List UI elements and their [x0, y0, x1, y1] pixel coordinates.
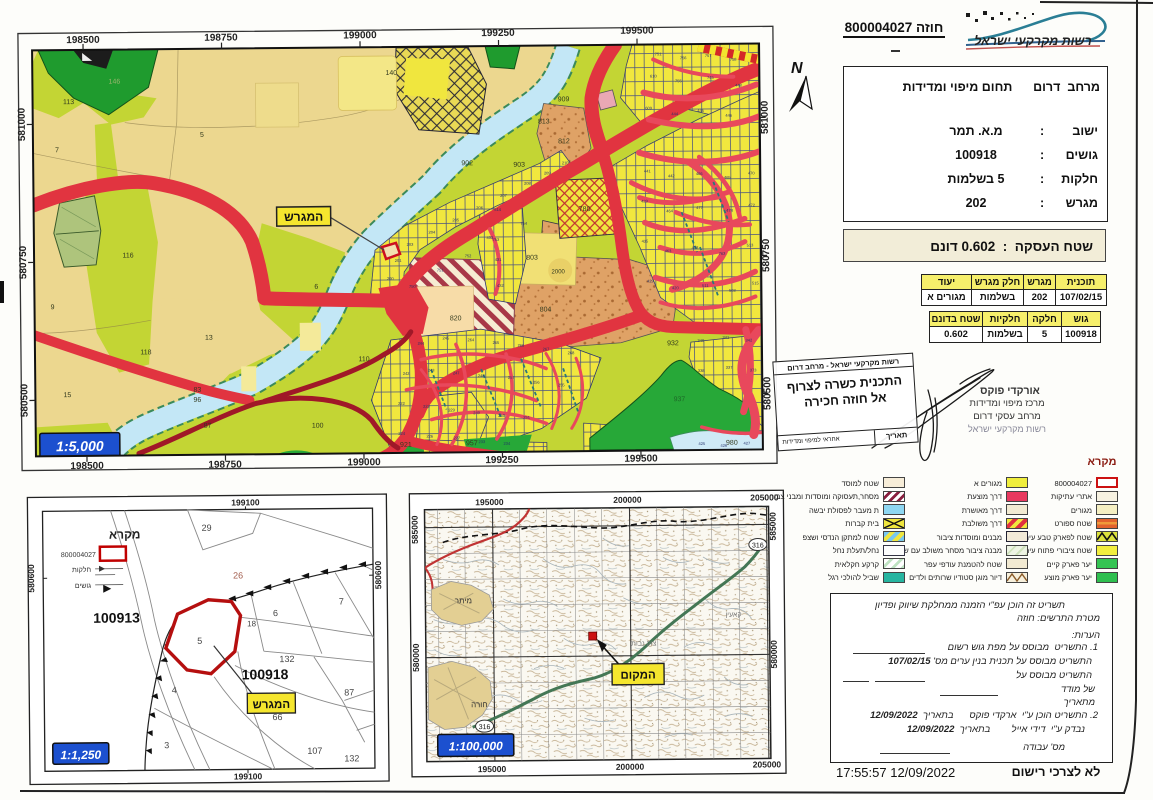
svg-text:113: 113 [63, 99, 74, 106]
svg-text:חלקות: חלקות [72, 566, 91, 574]
svg-text:580600: 580600 [26, 564, 36, 593]
svg-text:209: 209 [544, 170, 551, 175]
svg-text:316: 316 [752, 542, 764, 549]
svg-text:222: 222 [398, 401, 405, 406]
svg-text:474: 474 [726, 208, 733, 213]
svg-text:751: 751 [437, 267, 444, 272]
svg-text:466: 466 [696, 171, 703, 176]
svg-text:198750: 198750 [208, 459, 242, 470]
svg-text:4: 4 [172, 685, 177, 695]
svg-text:580500: 580500 [19, 383, 30, 417]
svg-text:צוק נבות: צוק נבות [631, 640, 657, 647]
svg-text:470: 470 [748, 170, 755, 175]
svg-text:100913: 100913 [93, 609, 140, 625]
svg-text:752: 752 [465, 253, 472, 258]
svg-text:199000: 199000 [343, 30, 377, 41]
svg-text:116: 116 [122, 252, 133, 259]
svg-text:580000: 580000 [411, 643, 421, 672]
svg-text:580000: 580000 [769, 640, 779, 669]
svg-text:226: 226 [426, 434, 433, 439]
svg-text:268: 268 [568, 350, 575, 355]
svg-text:198500: 198500 [66, 35, 100, 46]
svg-text:110: 110 [358, 356, 369, 363]
svg-text:256: 256 [533, 380, 540, 385]
svg-text:267: 267 [543, 346, 550, 351]
svg-text:6: 6 [273, 608, 278, 618]
svg-text:87: 87 [204, 423, 212, 430]
svg-text:465: 465 [724, 175, 731, 180]
svg-text:464: 464 [666, 208, 673, 213]
svg-text:245: 245 [442, 335, 449, 340]
svg-text:1:1,250: 1:1,250 [60, 748, 101, 762]
svg-text:7: 7 [55, 147, 59, 154]
svg-text:83: 83 [193, 387, 201, 394]
svg-text:199250: 199250 [485, 455, 519, 466]
svg-text:478: 478 [692, 245, 699, 250]
svg-text:804: 804 [540, 306, 552, 313]
svg-text:581000: 581000 [17, 107, 28, 141]
svg-text:מקרא: מקרא [109, 527, 141, 541]
svg-text:242: 242 [403, 371, 410, 376]
svg-text:198750: 198750 [204, 32, 238, 43]
svg-text:257: 257 [508, 375, 515, 380]
svg-text:205000: 205000 [753, 759, 782, 769]
svg-text:266: 266 [518, 343, 525, 348]
svg-text:198500: 198500 [70, 461, 104, 472]
svg-text:420: 420 [672, 285, 679, 290]
svg-text:932: 932 [667, 340, 679, 347]
svg-text:210: 210 [562, 160, 569, 165]
svg-text:426: 426 [721, 443, 728, 448]
svg-text:146: 146 [108, 79, 120, 86]
svg-text:140: 140 [385, 70, 397, 77]
svg-text:756: 756 [680, 55, 687, 60]
svg-text:199000: 199000 [347, 457, 381, 468]
svg-text:המגרש: המגרש [253, 699, 291, 711]
svg-text:431: 431 [495, 257, 502, 262]
svg-text:511: 511 [702, 283, 709, 288]
svg-text:373: 373 [750, 367, 757, 372]
svg-text:132: 132 [344, 753, 359, 763]
svg-text:87: 87 [344, 687, 354, 697]
svg-text:758: 758 [730, 57, 737, 62]
svg-text:250: 250 [498, 413, 505, 418]
svg-text:251: 251 [523, 415, 530, 420]
svg-text:580750: 580750 [18, 245, 29, 279]
svg-text:199500: 199500 [620, 25, 654, 36]
svg-text:223: 223 [423, 404, 430, 409]
svg-text:המקום: המקום [620, 669, 655, 681]
svg-text:9: 9 [51, 304, 55, 311]
svg-text:195000: 195000 [475, 497, 504, 507]
svg-text:763: 763 [719, 251, 726, 256]
svg-text:6: 6 [314, 284, 318, 291]
svg-text:337: 337 [726, 365, 733, 370]
svg-text:200000: 200000 [616, 762, 645, 772]
svg-text:813: 813 [538, 118, 550, 125]
svg-text:המגרש: המגרש [284, 210, 323, 224]
svg-text:199250: 199250 [481, 28, 515, 39]
svg-text:גושים: גושים [75, 583, 91, 590]
svg-text:513: 513 [747, 243, 754, 248]
svg-text:472: 472 [748, 202, 755, 207]
svg-text:442: 442 [668, 173, 675, 178]
svg-text:מיתר: מיתר [455, 596, 472, 605]
svg-text:909: 909 [558, 96, 570, 103]
svg-text:514: 514 [494, 207, 501, 212]
svg-text:503: 503 [729, 288, 736, 293]
svg-text:425: 425 [699, 441, 706, 446]
svg-text:921: 921 [400, 442, 412, 449]
svg-text:249: 249 [473, 410, 480, 415]
svg-text:3: 3 [164, 740, 169, 750]
svg-text:201: 201 [395, 258, 402, 263]
svg-text:751: 751 [655, 51, 662, 56]
svg-text:96: 96 [194, 397, 202, 404]
svg-text:477: 477 [696, 205, 703, 210]
svg-text:902: 902 [461, 160, 473, 167]
svg-text:580600: 580600 [373, 561, 383, 590]
svg-text:800004027: 800004027 [61, 552, 96, 559]
svg-text:439: 439 [641, 199, 648, 204]
svg-text:200: 200 [387, 276, 394, 281]
svg-text:957: 957 [466, 440, 478, 447]
svg-text:224: 224 [398, 431, 405, 436]
svg-text:207: 207 [500, 193, 507, 198]
svg-text:755: 755 [675, 78, 682, 83]
svg-text:234: 234 [503, 441, 510, 446]
svg-text:581000: 581000 [760, 100, 771, 134]
svg-text:18: 18 [247, 619, 257, 628]
svg-text:5: 5 [197, 636, 202, 646]
svg-text:N: N [791, 60, 803, 77]
svg-text:7: 7 [339, 596, 344, 606]
svg-text:754: 754 [520, 221, 527, 226]
svg-text:750: 750 [409, 284, 416, 289]
svg-text:199100: 199100 [231, 497, 260, 507]
svg-text:265: 265 [493, 340, 500, 345]
svg-text:448: 448 [735, 83, 742, 88]
svg-text:444: 444 [671, 111, 678, 116]
svg-text:609: 609 [645, 105, 652, 110]
svg-text:803: 803 [526, 255, 538, 262]
svg-text:5: 5 [200, 132, 204, 139]
svg-text:233: 233 [478, 439, 485, 444]
svg-text:227: 227 [453, 435, 460, 440]
svg-text:204: 204 [428, 230, 435, 235]
svg-text:244: 244 [418, 341, 425, 346]
svg-text:745: 745 [707, 75, 714, 80]
svg-text:580500: 580500 [762, 376, 773, 410]
svg-text:200000: 200000 [613, 495, 642, 505]
svg-text:229: 229 [448, 407, 455, 412]
svg-text:132: 132 [279, 654, 294, 664]
svg-text:1:5,000: 1:5,000 [56, 438, 104, 454]
svg-text:247: 247 [453, 370, 460, 375]
svg-text:2000: 2000 [552, 269, 566, 275]
svg-text:445: 445 [697, 108, 704, 113]
svg-text:820: 820 [450, 315, 462, 322]
svg-text:203: 203 [407, 242, 414, 247]
svg-text:13: 13 [205, 335, 213, 342]
svg-text:585000: 585000 [410, 515, 420, 544]
svg-text:205: 205 [452, 217, 459, 222]
svg-text:316: 316 [479, 724, 491, 731]
svg-text:26: 26 [233, 570, 243, 580]
svg-text:435: 435 [642, 239, 649, 244]
svg-text:264: 264 [467, 337, 474, 342]
svg-text:חורה: חורה [471, 700, 488, 709]
svg-text:753: 753 [493, 237, 500, 242]
svg-text:342: 342 [746, 338, 753, 343]
svg-text:208: 208 [524, 181, 531, 186]
svg-text:937: 937 [674, 396, 686, 403]
svg-text:757: 757 [705, 53, 712, 58]
svg-text:118: 118 [140, 349, 151, 356]
svg-text:338: 338 [698, 368, 705, 373]
svg-text:340: 340 [698, 338, 705, 343]
svg-text:15: 15 [63, 392, 71, 399]
svg-text:429: 429 [647, 278, 654, 283]
svg-text:107: 107 [307, 746, 322, 756]
svg-text:903: 903 [513, 162, 525, 169]
svg-text:243: 243 [428, 368, 435, 373]
svg-text:446: 446 [725, 113, 732, 118]
svg-text:463: 463 [665, 248, 672, 253]
svg-text:29: 29 [202, 523, 212, 533]
svg-text:255: 255 [558, 382, 565, 387]
svg-text:427: 427 [744, 441, 751, 446]
svg-text:432: 432 [497, 283, 504, 288]
svg-text:812: 812 [558, 138, 570, 145]
svg-text:441: 441 [644, 168, 651, 173]
svg-text:1:100,000: 1:100,000 [449, 739, 504, 754]
svg-text:341: 341 [722, 335, 729, 340]
svg-text:206: 206 [476, 205, 483, 210]
svg-text:515: 515 [752, 280, 759, 285]
svg-text:100: 100 [312, 423, 324, 430]
svg-text:780: 780 [579, 206, 591, 213]
svg-text:199500: 199500 [624, 453, 658, 464]
svg-text:580750: 580750 [761, 238, 772, 272]
svg-text:980: 980 [726, 440, 738, 447]
svg-text:248: 248 [478, 373, 485, 378]
svg-text:100918: 100918 [242, 666, 289, 682]
svg-text:קאעין: קאעין [725, 612, 741, 619]
svg-text:195000: 195000 [478, 764, 507, 774]
svg-text:610: 610 [650, 73, 657, 78]
